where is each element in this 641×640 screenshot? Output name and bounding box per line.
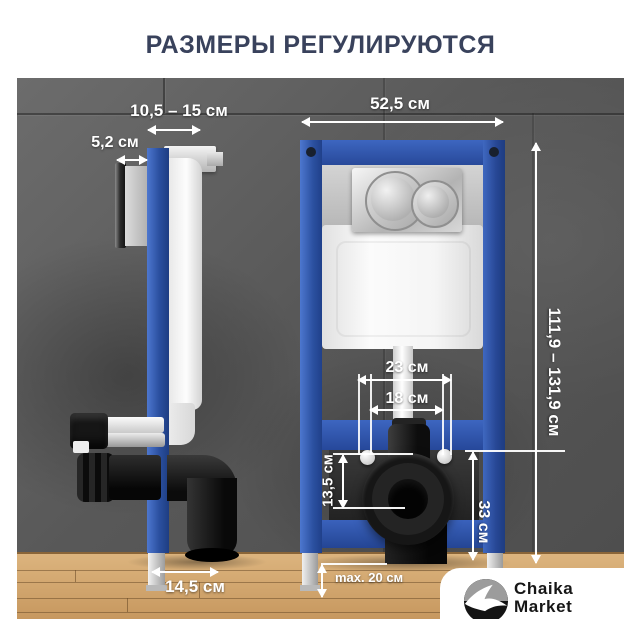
dim-stud-inner-label: 18 см — [372, 390, 442, 408]
dim-stud-outer-label: 23 см — [372, 359, 442, 377]
dim-extension-line — [442, 374, 444, 455]
dim-outlet-drop-arrow — [342, 455, 344, 508]
drain-socket-front — [362, 453, 454, 545]
dim-mount-depth-label: 10,5 – 15 см — [119, 101, 239, 121]
dim-mount-depth-arrow — [148, 129, 200, 131]
page-title: РАЗМЕРЫ РЕГУЛИРУЮТСЯ — [0, 31, 641, 60]
dim-foot-max-arrow — [321, 565, 323, 597]
dim-stud-inner-arrow — [370, 409, 443, 411]
seagull-icon — [463, 578, 509, 619]
brand-name-line2: Market — [514, 598, 573, 616]
dim-extension-line — [370, 374, 372, 455]
wall-bracket-step — [207, 152, 223, 166]
dim-outlet-depth-label: 14,5 см — [155, 577, 235, 597]
cistern-emboss — [336, 241, 471, 337]
dim-frame-width-label: 52,5 см — [350, 94, 450, 114]
drain-socket-side — [109, 455, 161, 500]
dim-foot-max-label: max. 20 см — [335, 570, 407, 585]
dim-outlet-drop-label: 13,5 см — [320, 451, 337, 511]
product-photo: 10,5 – 15 см 5,2 см 52,5 см 111,9 – 131,… — [17, 78, 624, 619]
cistern-side-lower — [167, 403, 195, 445]
brand-card: Chaika Market — [440, 568, 624, 619]
dim-extension-line — [358, 374, 360, 455]
dim-tick-line — [465, 450, 565, 452]
drain-elbow-outlet — [185, 548, 239, 562]
dim-plate-depth-label: 5,2 см — [87, 134, 143, 152]
frame-foot-left — [302, 553, 318, 587]
dim-plate-depth-arrow — [117, 159, 147, 161]
cistern-side — [167, 158, 202, 410]
frame-top-bar — [300, 140, 505, 165]
flush-button-small-inner — [417, 186, 449, 218]
flush-button-large-inner — [371, 177, 415, 221]
floor-plank-joint — [75, 570, 76, 582]
drain-elbow-vertical — [187, 478, 237, 556]
dim-frame-width-arrow — [302, 121, 503, 123]
dim-outlet-height-label: 33 см — [474, 487, 492, 557]
product-card: РАЗМЕРЫ РЕГУЛИРУЮТСЯ — [0, 0, 641, 640]
dim-stud-outer-arrow — [358, 379, 451, 381]
tile-seam — [532, 113, 534, 552]
flush-pipe — [393, 346, 413, 426]
dim-extension-line — [450, 374, 452, 455]
dim-tick-line — [321, 563, 387, 565]
pipe-fitting — [73, 441, 89, 453]
frame-corner-hole — [489, 147, 499, 157]
dim-frame-height-arrow — [535, 143, 537, 563]
floor-plank-joint — [127, 598, 128, 612]
frame-corner-hole — [306, 147, 316, 157]
dim-outlet-depth-arrow — [152, 571, 218, 573]
brand-name-line1: Chaika — [514, 580, 573, 598]
brand-name: Chaika Market — [514, 580, 573, 616]
dim-frame-height-label: 111,9 – 131,9 см — [544, 292, 564, 452]
